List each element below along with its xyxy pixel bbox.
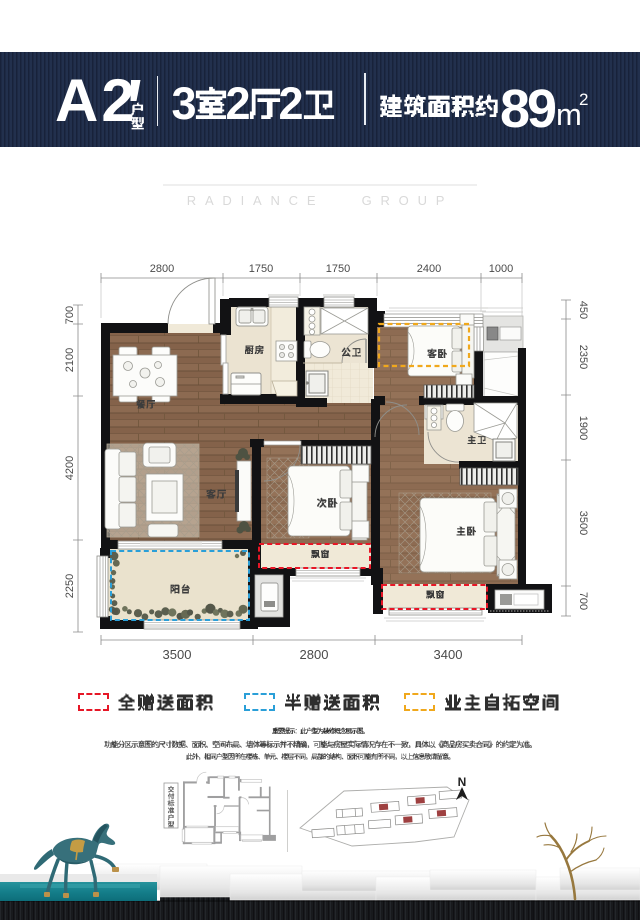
svg-text:3500: 3500 [577,511,589,535]
svg-text:2: 2 [278,78,303,129]
svg-text:1750: 1750 [326,263,350,275]
svg-text:2: 2 [579,90,588,109]
svg-text:2400: 2400 [417,263,441,275]
svg-text:2350: 2350 [577,345,589,369]
svg-text:2: 2 [225,78,250,129]
svg-text:2800: 2800 [300,647,329,662]
svg-text:2250: 2250 [64,574,76,598]
svg-text:3: 3 [171,78,196,129]
svg-text:m: m [556,97,582,132]
svg-text:89: 89 [500,79,556,139]
svg-text:3400: 3400 [434,647,463,662]
svg-text:4200: 4200 [64,456,76,480]
svg-text:1750: 1750 [249,263,273,275]
svg-text:450: 450 [577,301,589,319]
svg-text:1900: 1900 [577,416,589,440]
svg-text:N: N [458,775,467,789]
svg-text:2100: 2100 [64,348,76,372]
svg-text:1000: 1000 [489,263,513,275]
svg-text:2800: 2800 [150,263,174,275]
svg-text:3500: 3500 [163,647,192,662]
svg-text:700: 700 [64,306,76,324]
svg-text:700: 700 [577,592,589,610]
